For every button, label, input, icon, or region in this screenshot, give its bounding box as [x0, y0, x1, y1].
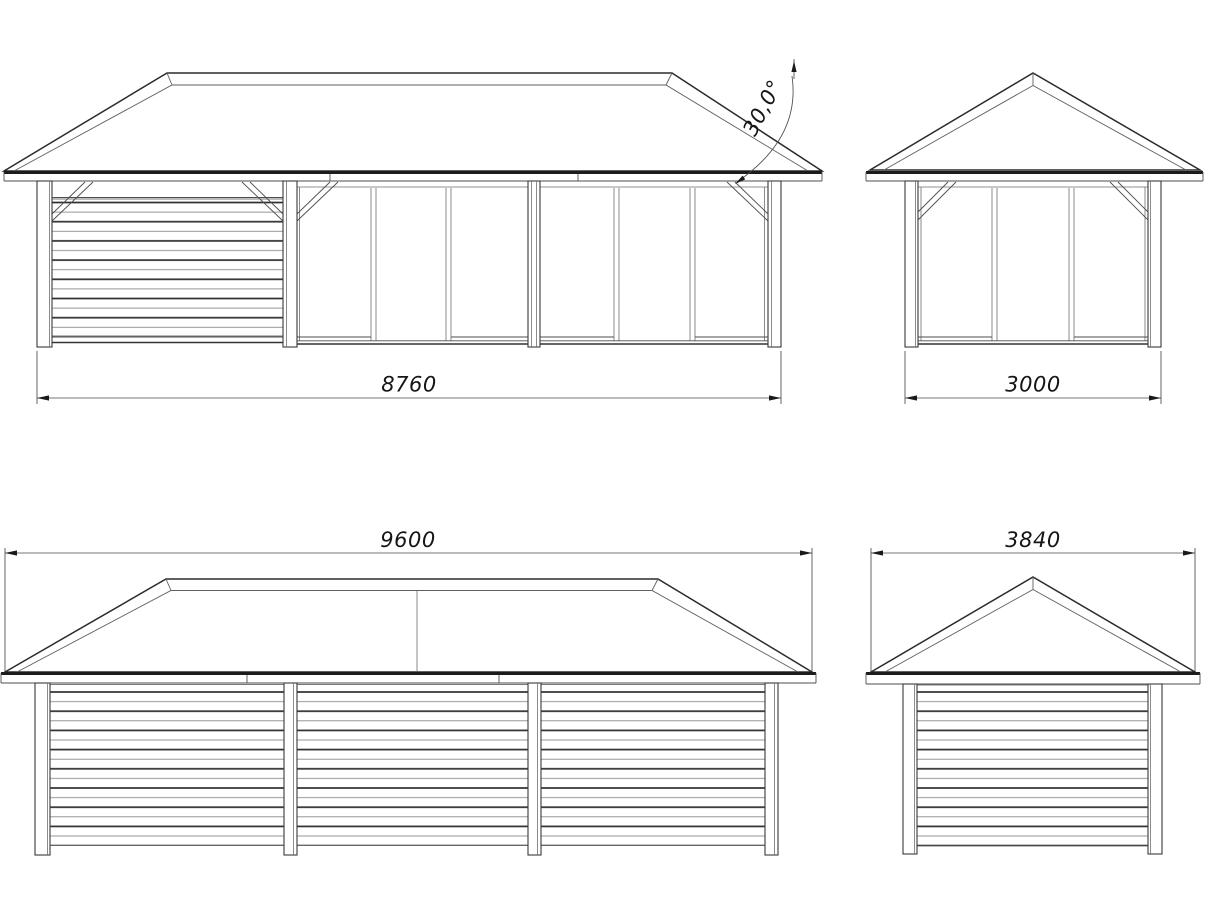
side-glazed-elevation-view: 3000 — [866, 73, 1203, 404]
dimension-arrow-left — [37, 395, 49, 400]
rear-slat-panels — [50, 685, 765, 846]
side-glazed-width-dimension-label: 3000 — [1005, 373, 1060, 397]
drawing-sheet: 8760 30,0° — [0, 0, 1214, 911]
dimension-arrow-left — [5, 550, 17, 555]
rear-width-dimension-label: 9600 — [380, 528, 435, 552]
front-elevation-view: 8760 30,0° — [4, 59, 822, 404]
side-clad-roof — [866, 577, 1200, 684]
dimension-arrow-right — [1183, 550, 1195, 555]
side-clad-elevation-view: 3840 — [866, 528, 1200, 854]
rear-elevation-view: 9600 — [1, 528, 816, 855]
front-roof — [4, 73, 822, 181]
side-glazed-width-dimension: 3000 — [905, 351, 1161, 404]
dimension-arrow-left — [905, 395, 917, 400]
side-glazed-posts — [905, 181, 1161, 347]
dimension-arrow-right — [769, 395, 781, 400]
side-glazed-glass-panels — [918, 187, 1148, 344]
dimension-arrow-left — [871, 550, 883, 555]
rear-roof — [1, 579, 816, 683]
corner-braces — [918, 182, 1148, 220]
roof-angle-label: 30,0° — [738, 76, 787, 140]
side-clad-slat-panel — [917, 685, 1148, 846]
front-width-dimension: 8760 — [37, 351, 781, 404]
technical-drawing: 8760 30,0° — [0, 0, 1214, 911]
side-glazed-roof — [866, 73, 1203, 181]
dimension-arrow-right — [800, 550, 812, 555]
angle-arrow-top — [791, 61, 796, 72]
front-width-dimension-label: 8760 — [381, 373, 436, 397]
front-slat-panel — [52, 198, 283, 343]
side-clad-width-dimension-label: 3840 — [1005, 528, 1060, 552]
dimension-arrow-right — [1149, 395, 1161, 400]
